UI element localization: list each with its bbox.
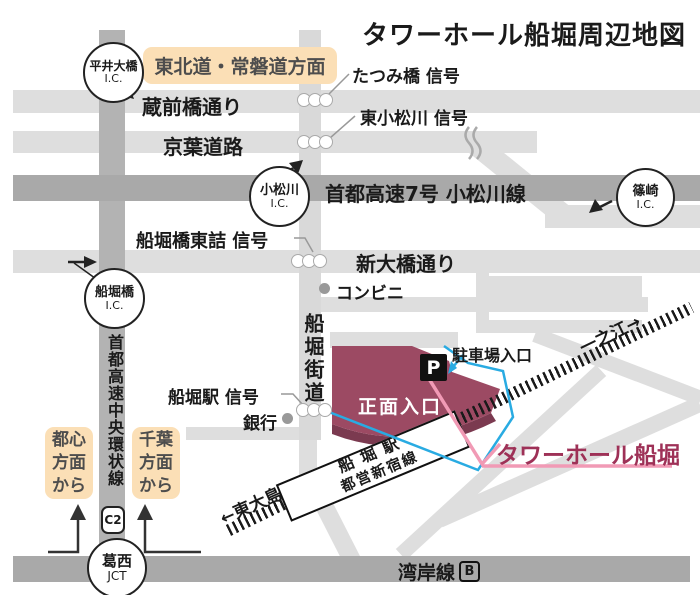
arrow-funaboribashi-ic (84, 256, 97, 268)
ic-komatsugawa-sub: I.C. (271, 198, 289, 210)
bank-label: 銀行 (243, 409, 277, 434)
signal-label-funabori-eki: 船堀駅 信号 (168, 383, 259, 408)
signal-label-funaboribashi-higashizume: 船堀橋東詰 信号 (136, 227, 268, 253)
ic-komatsugawa-name: 小松川 (260, 184, 299, 198)
jct-kasai-sub: JCT (107, 570, 126, 583)
road-label-shinohashi: 新大橋通り (356, 248, 456, 277)
arrow-from-chiba (137, 504, 153, 520)
badge-from-toshin: 都心 方面 から (45, 427, 93, 499)
road-label-wangan: 湾岸線 B (398, 558, 480, 585)
parking-icon: P (420, 354, 447, 381)
ic-funaboribashi-sub: I.C. (106, 300, 124, 312)
ic-hirai-sub: I.C. (105, 73, 123, 85)
signal-icon-funabori-eki (299, 403, 332, 417)
signal-label-tatsumibashi: たつみ橋 信号 (352, 62, 460, 87)
map-canvas: 船堀駅 都営新宿線 ←東大島 一之江→ タワー (0, 0, 700, 595)
road-label-kuramaebashi: 蔵前橋通り (142, 91, 242, 120)
conbini-label: コンビニ (336, 279, 404, 304)
arrow-shinozaki-line (600, 201, 612, 207)
road-label-shuto7: 首都高速7号 小松川線 (325, 178, 526, 207)
jct-kasai-name: 葛西 (102, 554, 132, 570)
river-squiggle-2 (474, 127, 481, 159)
parking-entrance-label: 駐車場入口 (452, 342, 532, 366)
badge-tohoku-joban: 東北道・常磐道方面 (143, 47, 337, 84)
river-squiggle (466, 127, 473, 159)
arrow-from-chiba-line (145, 520, 201, 552)
signal-icon-tatsumibashi (300, 93, 333, 107)
leader-funaboribashi-higashizume (294, 238, 313, 252)
jct-kasai: 葛西 JCT (87, 538, 147, 595)
ic-shinozaki-name: 篠崎 (632, 185, 658, 199)
signal-icon-funaboribashi-higashizume (294, 254, 327, 268)
ic-hirai: 平井大橋 I.C. (83, 42, 144, 103)
ic-funaboribashi: 船堀橋 I.C. (84, 268, 145, 329)
c2-route-mark: C2 (101, 506, 125, 534)
road-label-chuo-kanjo: 首都高速中央環状線 (102, 334, 126, 487)
road-label-funabori-kaido: 船堀街道 (299, 313, 328, 405)
arrow-from-toshin (70, 504, 86, 520)
signal-label-higashi-komatsugawa: 東小松川 信号 (360, 104, 468, 129)
leader-higashi-komatsugawa (330, 116, 355, 138)
wangan-route-mark: B (459, 561, 480, 582)
page-title: タワーホール船堀周辺地図 (362, 15, 686, 52)
ic-shinozaki-sub: I.C. (637, 199, 655, 211)
bank-dot (282, 413, 293, 424)
tower-hall-label: タワーホール船堀 (496, 436, 680, 470)
ic-komatsugawa: 小松川 I.C. (249, 166, 310, 227)
tower-hall-leader (426, 374, 500, 464)
ic-shinozaki: 篠崎 I.C. (616, 168, 675, 227)
arrow-from-toshin-line (48, 520, 78, 552)
conbini-dot (319, 283, 330, 294)
signal-icon-higashi-komatsugawa (300, 135, 333, 149)
ic-funaboribashi-name: 船堀橋 (95, 286, 134, 300)
badge-from-chiba: 千葉 方面 から (132, 427, 180, 499)
wangan-text: 湾岸線 (398, 558, 455, 585)
main-entrance-label: 正面入口 (358, 392, 442, 419)
road-label-keiyo: 京葉道路 (163, 131, 243, 160)
